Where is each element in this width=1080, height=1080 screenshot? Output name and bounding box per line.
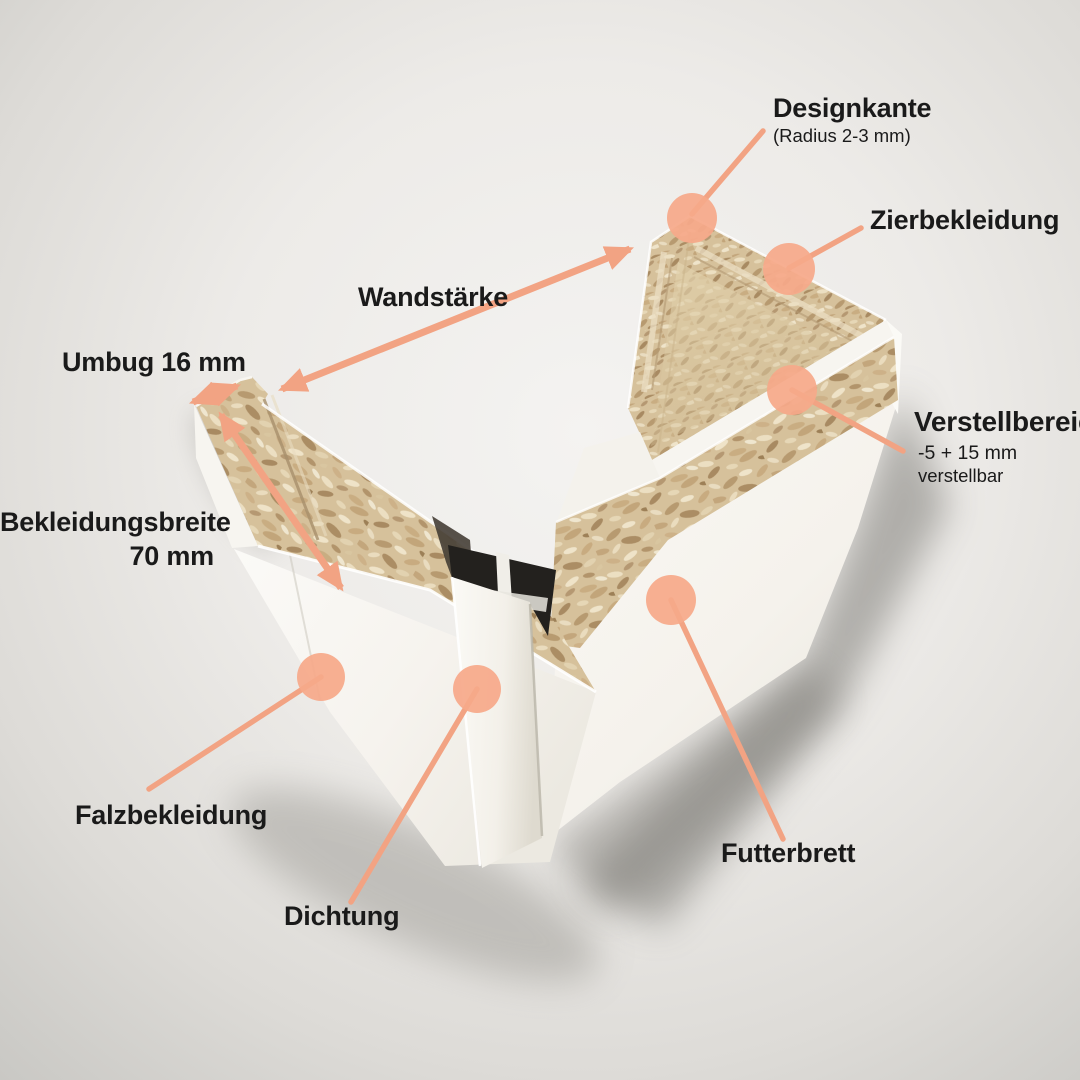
designkante-note: (Radius 2-3 mm): [773, 126, 911, 146]
dichtung-marker-dot: [453, 665, 501, 713]
verstellbereich-note1: -5 + 15 mm: [918, 443, 1017, 464]
falzbekleidung-label: Falzbekleidung: [75, 801, 267, 831]
designkante-label: Designkante: [773, 94, 931, 124]
futterbrett-label: Futterbrett: [721, 839, 855, 869]
wandstaerke-label: Wandstärke: [358, 283, 508, 313]
door-frame-infographic: Designkante (Radius 2-3 mm) Zierbekleidu…: [0, 0, 1080, 1080]
door-frame-illustration: [0, 0, 1080, 1080]
bekleidungsbreite-label: Bekleidungsbreite: [0, 508, 214, 538]
zierbekleidung-label: Zierbekleidung: [870, 206, 1059, 236]
falzbekleidung-marker-dot: [297, 653, 345, 701]
verstellbereich-note2: verstellbar: [918, 466, 1003, 486]
zierbekleidung-marker-dot: [763, 243, 815, 295]
falzbekleidung-leader-line: [149, 677, 321, 789]
wandstaerke-dimension-arrow: [282, 249, 630, 389]
verstellbereich-label: Verstellbereich: [914, 407, 1080, 438]
designkante-marker-dot: [667, 193, 717, 243]
bekleidungsbreite-value: 70 mm: [0, 542, 214, 572]
dichtung-label: Dichtung: [284, 902, 399, 932]
futterbrett-marker-dot: [646, 575, 696, 625]
verstellbereich-marker-dot: [767, 365, 817, 415]
umbug-label: Umbug 16 mm: [62, 348, 246, 378]
